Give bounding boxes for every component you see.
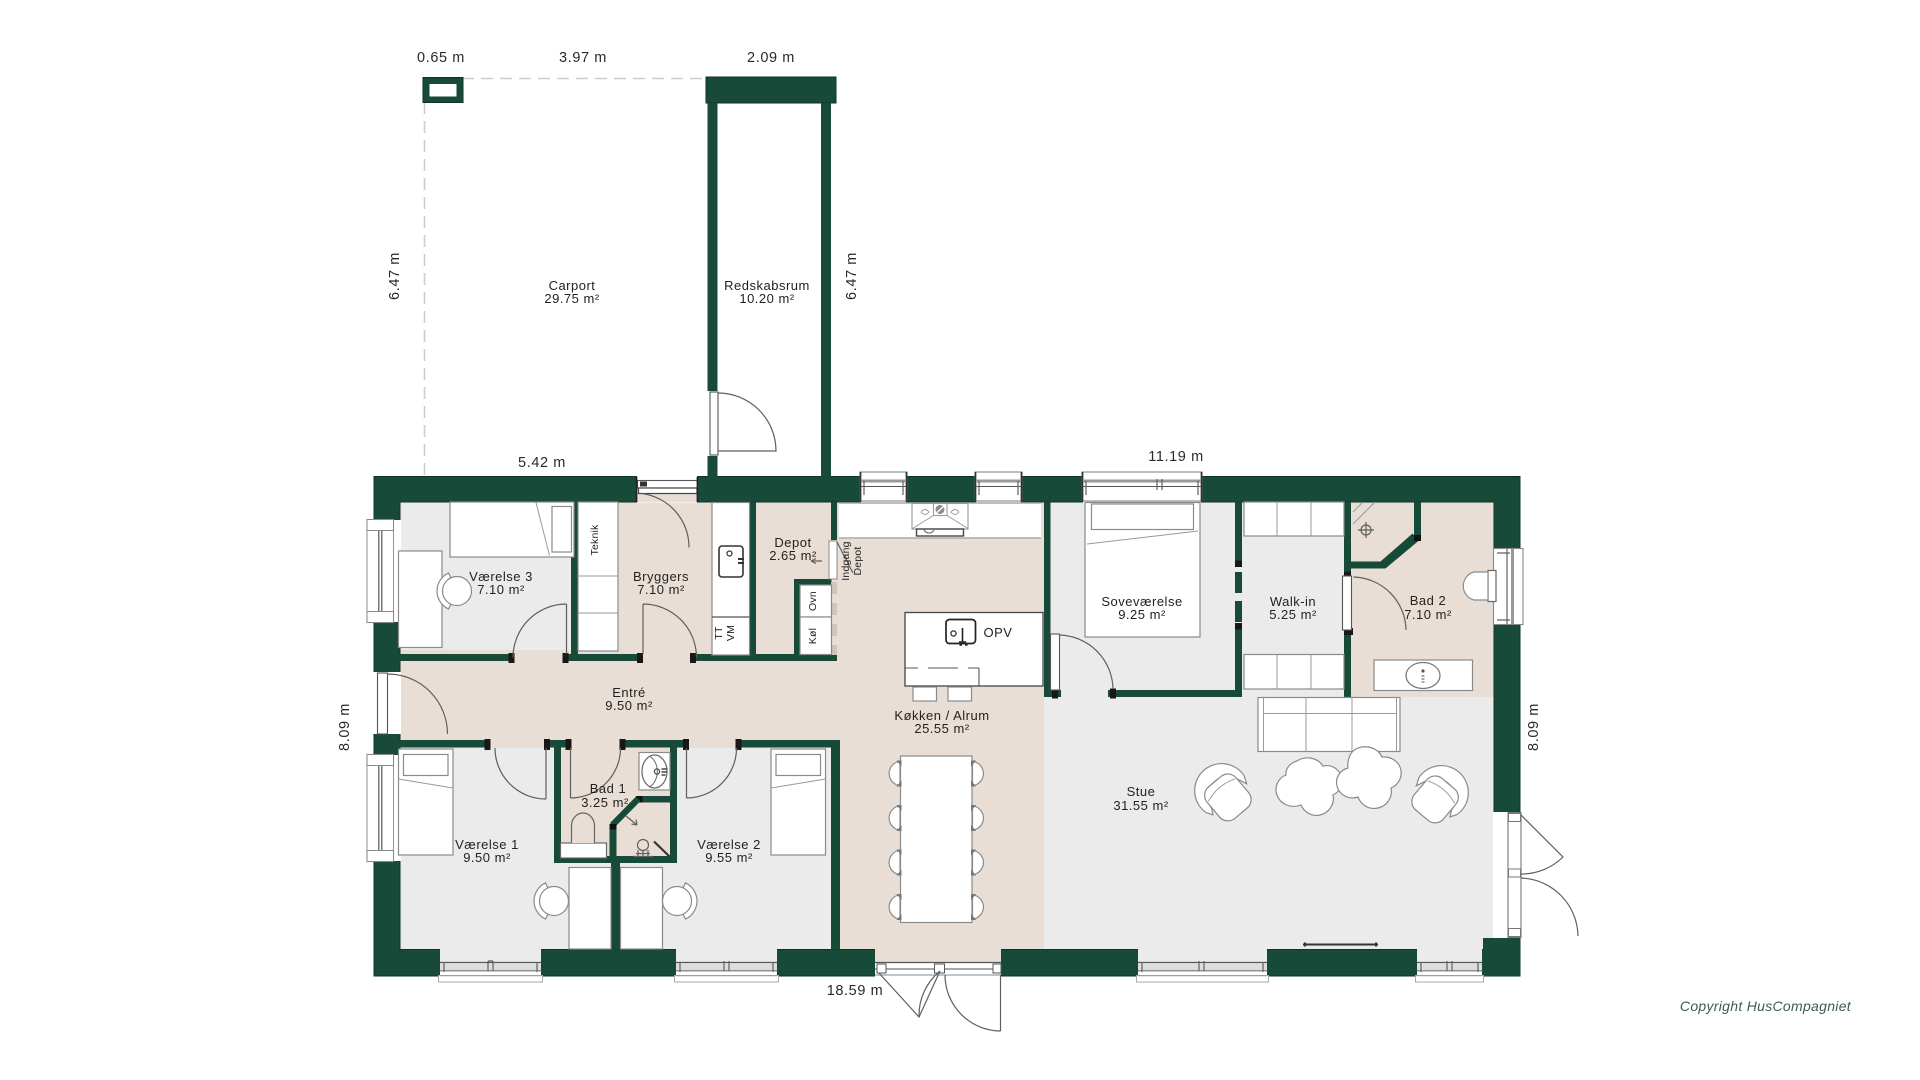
svg-text:18.59 m: 18.59 m — [827, 983, 884, 999]
svg-text:Copyright HusCompagniet: Copyright HusCompagniet — [1680, 998, 1852, 1014]
svg-text:Indgang: Indgang — [840, 541, 852, 580]
svg-text:OPV: OPV — [984, 625, 1013, 640]
svg-text:6.47 m: 6.47 m — [387, 252, 403, 300]
svg-text:25.55 m²: 25.55 m² — [914, 721, 969, 736]
svg-text:9.50 m²: 9.50 m² — [605, 698, 653, 713]
svg-text:6.47 m: 6.47 m — [844, 252, 860, 300]
svg-text:Bad 2: Bad 2 — [1410, 593, 1446, 608]
svg-text:Køl: Køl — [807, 628, 819, 644]
svg-text:3.25 m²: 3.25 m² — [581, 795, 629, 810]
svg-text:8.09 m: 8.09 m — [1526, 703, 1542, 751]
svg-text:9.25 m²: 9.25 m² — [1118, 607, 1166, 622]
svg-text:7.10 m²: 7.10 m² — [477, 582, 525, 597]
svg-text:Stue: Stue — [1127, 784, 1156, 799]
svg-text:3.97 m: 3.97 m — [559, 50, 607, 66]
svg-text:5.25 m²: 5.25 m² — [1269, 607, 1317, 622]
svg-text:9.55 m²: 9.55 m² — [705, 850, 753, 865]
svg-text:2.09 m: 2.09 m — [747, 50, 795, 66]
svg-text:11.19 m: 11.19 m — [1148, 449, 1204, 465]
svg-text:Bad 1: Bad 1 — [590, 781, 626, 796]
svg-text:31.55 m²: 31.55 m² — [1113, 798, 1168, 813]
svg-text:7.10 m²: 7.10 m² — [637, 582, 685, 597]
svg-text:Teknik: Teknik — [589, 524, 601, 556]
svg-text:Ovn: Ovn — [807, 591, 819, 611]
svg-text:2.65 m²: 2.65 m² — [769, 548, 817, 563]
svg-text:0.65 m: 0.65 m — [417, 50, 465, 66]
svg-text:5.42 m: 5.42 m — [518, 455, 566, 471]
svg-text:Depot: Depot — [852, 546, 864, 575]
svg-text:29.75 m²: 29.75 m² — [544, 291, 599, 306]
svg-text:8.09 m: 8.09 m — [337, 703, 353, 751]
svg-text:7.10 m²: 7.10 m² — [1404, 607, 1452, 622]
svg-text:10.20 m²: 10.20 m² — [739, 291, 794, 306]
svg-text:VM: VM — [725, 625, 737, 641]
svg-text:TT: TT — [713, 626, 725, 640]
svg-text:9.50 m²: 9.50 m² — [463, 850, 511, 865]
